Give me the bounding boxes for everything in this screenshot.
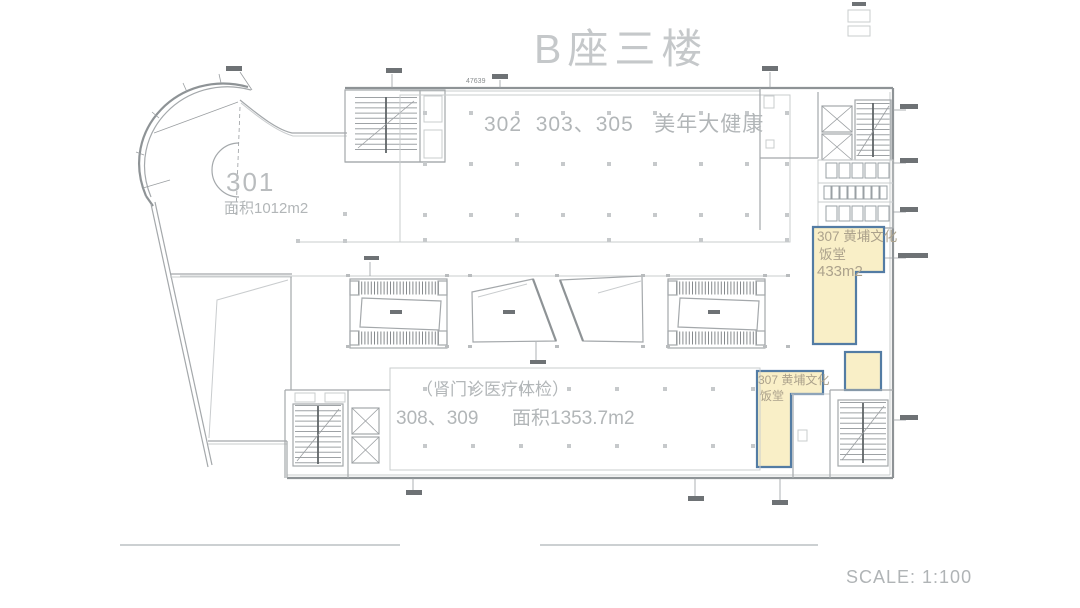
top-left-stair-block	[345, 90, 445, 162]
right-top-block	[760, 88, 893, 230]
room-301-area: 面积1012m2	[224, 200, 308, 219]
toilet-stalls	[824, 163, 889, 221]
atrium-void-right	[560, 276, 643, 342]
escalator-left	[350, 279, 447, 348]
canteen-307-lower-line1: 307 黄埔文化	[758, 373, 829, 388]
bottom-left-block	[285, 390, 390, 478]
canteen-307-lower-line2: 饭堂	[760, 389, 784, 404]
room-308-note: （肾门诊医疗体检）	[416, 379, 569, 400]
room-302-label: 302 303、305 美年大健康	[484, 112, 764, 138]
page-title: B座三楼	[534, 24, 708, 75]
canteen-307-upper-line2: 饭堂	[819, 247, 846, 264]
room-308-numbers: 308、309	[396, 407, 478, 431]
escalator-right	[668, 279, 765, 348]
room-308-area: 面积1353.7m2	[512, 407, 635, 431]
floor-plan-page: B座三楼 47639 301 面积1012m2 302 303、305 美年大健…	[0, 0, 1080, 608]
canteen-307-upper-line1: 307 黄埔文化	[817, 229, 897, 246]
canteen-307-upper-line3: 433m2	[817, 263, 863, 282]
room-301-number: 301	[226, 166, 275, 199]
canteen-307-box-region	[845, 352, 881, 390]
atrium-void-left	[472, 279, 556, 342]
bottom-right-block	[791, 390, 893, 478]
atrium	[180, 256, 790, 364]
scale-label: SCALE: 1:100	[846, 566, 972, 589]
floor-plan-drawing	[0, 0, 1080, 608]
dimension-label-top: 47639	[466, 78, 485, 87]
left-walls	[151, 202, 292, 478]
